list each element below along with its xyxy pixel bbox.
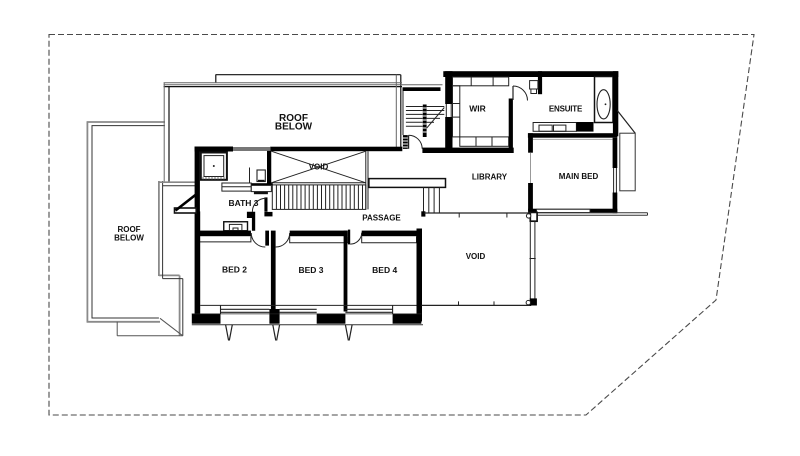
svg-text:BED 4: BED 4 [372, 265, 397, 275]
svg-text:BELOW: BELOW [275, 122, 313, 133]
svg-text:WIR: WIR [469, 104, 486, 114]
svg-text:BATH 3: BATH 3 [228, 198, 258, 208]
svg-text:MAIN BED: MAIN BED [559, 172, 599, 181]
svg-text:BELOW: BELOW [114, 234, 144, 243]
svg-text:ENSUITE: ENSUITE [549, 105, 583, 114]
svg-text:BED 2: BED 2 [222, 265, 247, 275]
svg-text:BED 3: BED 3 [298, 265, 323, 275]
svg-text:VOID: VOID [309, 162, 329, 171]
svg-text:LIBRARY: LIBRARY [472, 173, 508, 182]
svg-text:PASSAGE: PASSAGE [362, 214, 401, 223]
svg-text:VOID: VOID [466, 252, 486, 261]
